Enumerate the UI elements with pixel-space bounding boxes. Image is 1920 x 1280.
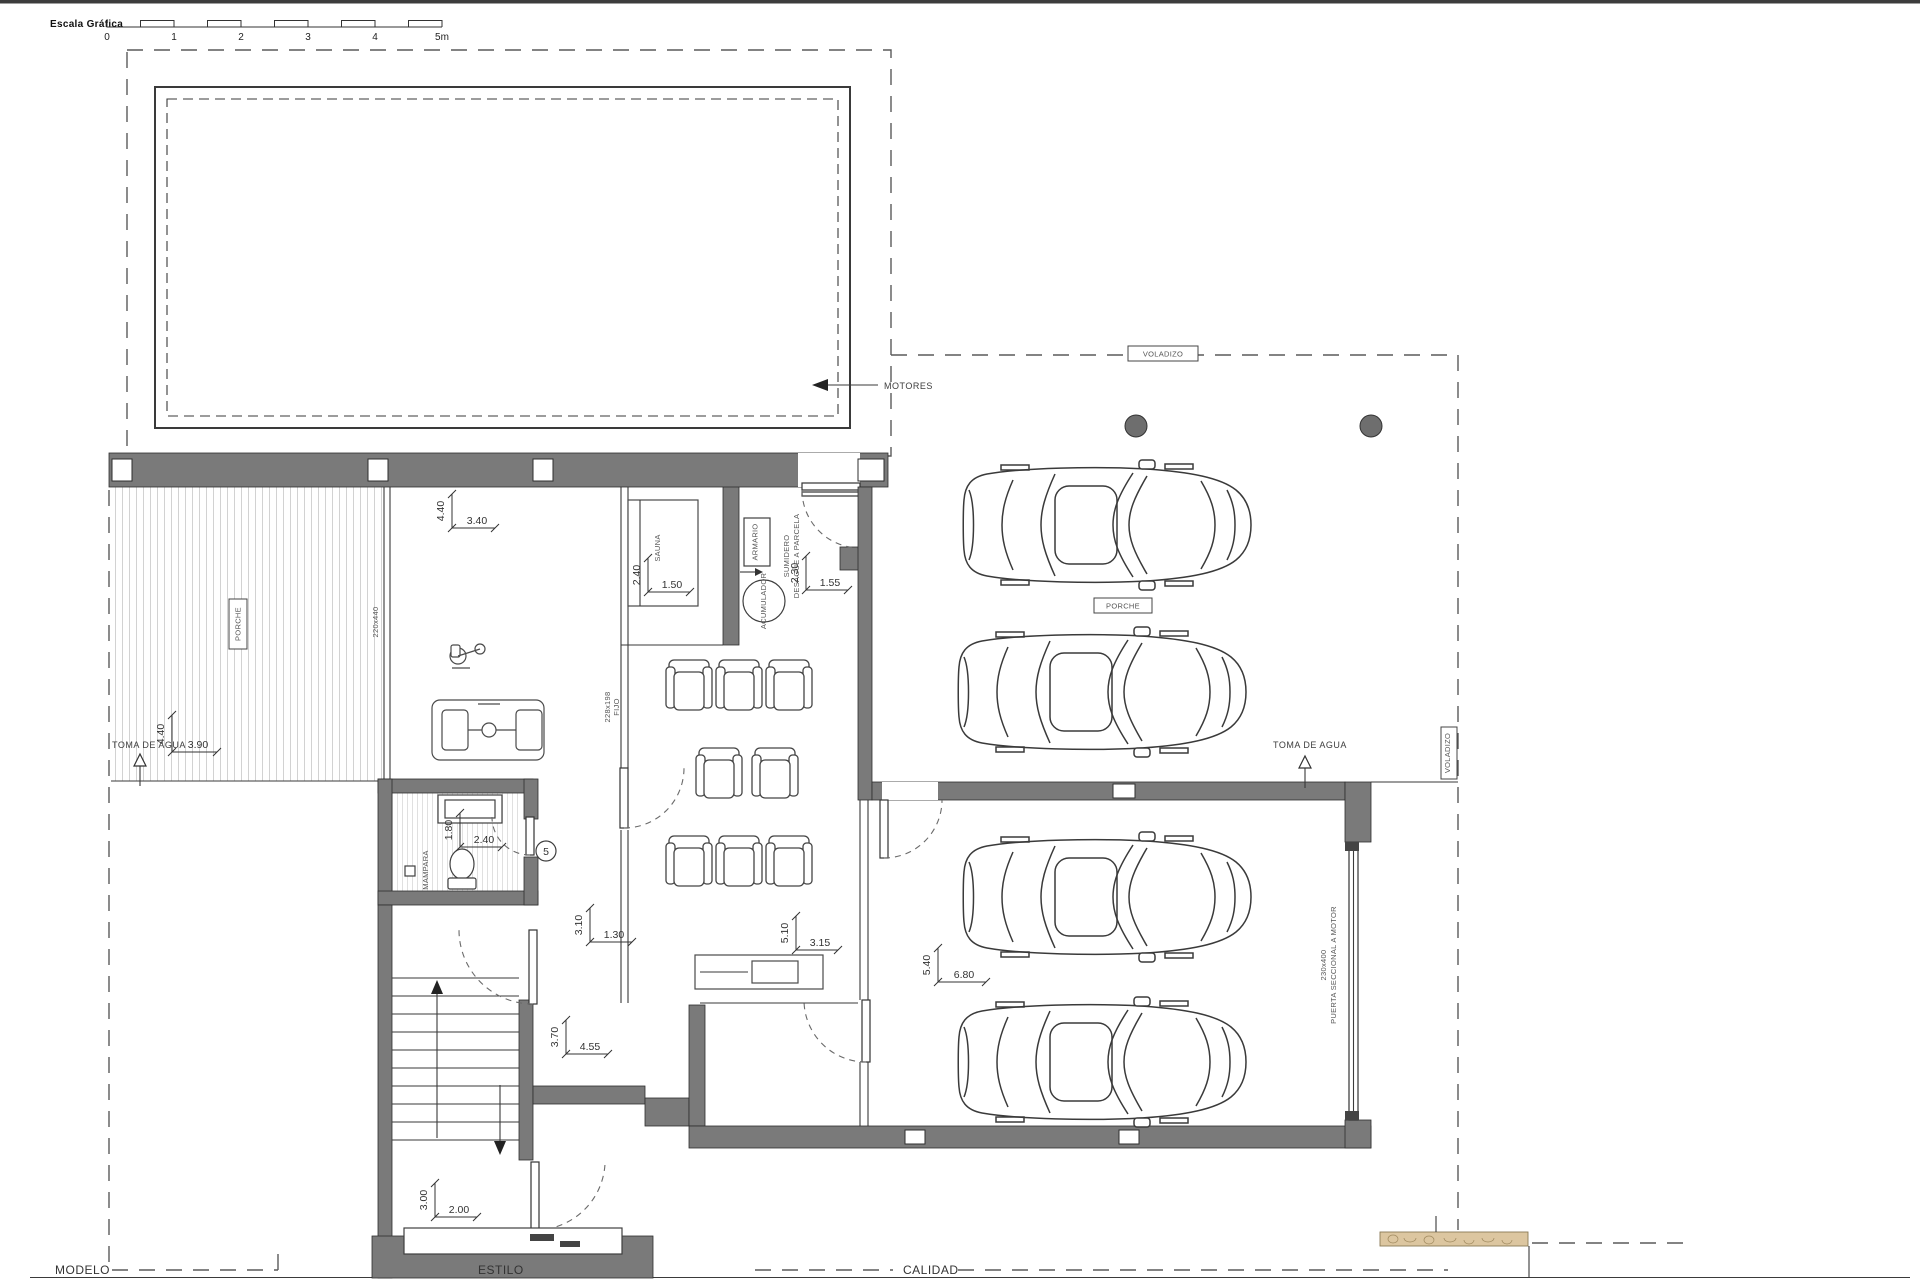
cinema-garage-door-leaf [862,1000,870,1062]
car-terrace-2 [958,627,1246,757]
shower-drain [405,866,415,876]
motores-label: MOTORES [884,381,933,391]
terrace-column [1125,415,1147,437]
floor-plan-basement: Escala Gráfica 0 1 2 3 4 5m MOTORES PORC… [0,0,1920,1280]
keynote-number: 5 [543,846,549,858]
dim-gym-h: 3.40 [467,515,488,527]
cinema-seat [666,836,712,886]
scale-tick-2: 2 [238,32,244,43]
stone-strip [1380,1216,1528,1246]
plot-boundary-bottom-left [112,1252,278,1270]
garage-door-size: 230x400 [1319,950,1328,981]
cinema-room: 228x198 FIJO [603,660,858,1003]
cinema-window-type-label: FIJO [612,698,621,715]
scale-tick-5: 5m [435,32,449,43]
vestibule-door-hw [530,1234,554,1241]
dim-bath-h: 2.40 [474,834,495,846]
cinema-window-size-label: 228x198 [603,692,612,723]
gym-machine [432,700,544,760]
dim-porch-v: 4.40 [155,724,167,745]
landing-door-swing [459,930,533,1004]
dim-stairs-h: 4.55 [580,1041,601,1053]
drawing-sheet: Escala Gráfica 0 1 2 3 4 5m MOTORES PORC… [0,0,1920,1280]
terrace-garage-door-leaf [880,800,888,858]
cinema-door-leaf [620,768,628,828]
cinema-seat [752,748,798,798]
cinema-door-swing [624,768,684,828]
dim-cinema-h: 3.15 [810,937,831,949]
title-modelo: MODELO [55,1263,110,1277]
bathroom-door-leaf [526,817,534,855]
dim-utility-h: 1.55 [820,577,841,589]
vestibule-recess [404,1228,622,1254]
title-calidad: CALIDAD [903,1263,959,1277]
dim-sauna-v: 2.40 [631,565,643,586]
bathroom: MAMPARA 5 [378,779,556,905]
dim-cinema-v: 5.10 [779,923,791,944]
cinema-garage-door-swing [804,1000,866,1062]
voladizo-right-label: VOLADIZO [1443,733,1452,773]
scale-tick-1: 1 [171,32,177,43]
armario-label: ARMARIO [751,523,760,560]
sauna-label: SAUNA [653,534,662,561]
media-console [695,955,823,989]
stair-arrow-down-icon [494,1141,506,1155]
motores-arrow-icon [812,379,828,391]
mampara-label: MAMPARA [421,850,430,889]
cinema-seat [766,660,812,710]
sectional-door-cap-top [1345,842,1359,851]
title-estilo: ESTILO [478,1263,524,1277]
dim-hall-v: 3.10 [573,915,585,936]
terrace-garage-door-swing [884,800,942,858]
cinema-seat [716,836,762,886]
dim-gym-v: 4.40 [435,501,447,522]
pool [155,87,850,428]
toma-agua-right-label: TOMA DE AGUA [1273,740,1347,750]
pool-inner-edge [167,99,838,416]
scale-tick-3: 3 [305,32,311,43]
gym-cinema-partition [621,487,628,1003]
cinema-seat [696,748,742,798]
toma-de-agua-right: TOMA DE AGUA [1273,740,1347,788]
hall-walls [533,1086,689,1126]
pool-plot-boundary [127,50,891,456]
dim-vestibule-v: 3.00 [418,1190,430,1211]
stair-bottom-door-leaf [531,1162,539,1232]
terrace-column [1360,415,1382,437]
cinema-garage-partition [860,800,868,1126]
utility-door-opening [798,453,860,487]
garage-door-label: PUERTA SECCIONAL A MOTOR [1329,906,1338,1024]
utility-door [802,483,860,548]
stair-bottom-door-swing [535,1164,605,1230]
dim-utility-v: 2.30 [789,563,801,584]
stair-arrow-up-icon [431,980,443,994]
toilet [448,849,476,889]
voladizo-top-label: VOLADIZO [1143,350,1183,359]
scale-bar-title: Escala Gráfica [50,19,123,30]
car-terrace-1 [963,460,1251,590]
cinema-seat [766,836,812,886]
motores-callout: MOTORES [812,379,933,391]
landing-door-leaf [529,930,537,1004]
utility-door-swing [802,490,860,548]
sumidero-label-2: DESAGÜE A PARCELA [792,514,801,599]
dim-vestibule-h: 2.00 [449,1204,470,1216]
car-garage-2 [958,997,1246,1127]
dim-sauna-h: 1.50 [662,579,683,591]
cinema-seat [716,660,762,710]
terrace-garage-door-opening [882,782,938,800]
acumulador-label: ACUMULADOR [759,573,768,630]
pool-outer-edge [155,87,850,428]
dim-stairs-v: 3.70 [549,1027,561,1048]
scale-tick-4: 4 [372,32,378,43]
utility-room: ARMARIO ACUMULADOR SUMIDERO DESAGÜE A PA… [723,479,866,645]
gym-room: 220x440 [371,487,628,1003]
vestibule-door-hw2 [560,1241,580,1247]
dim-bath-v: 1.80 [443,820,455,841]
scale-tick-0: 0 [104,32,110,43]
porch-left: PORCHE [111,481,384,781]
porche-terrace-label: PORCHE [1106,602,1140,611]
sectional-door-cap-bottom [1345,1111,1359,1120]
toma-agua-left-label: TOMA DE AGUA [112,740,186,750]
toma-agua-right-icon [1299,756,1311,768]
porche-left-label: PORCHE [234,607,243,641]
car-garage-1 [963,832,1251,962]
cinema-seat [666,660,712,710]
dim-porch-h: 3.90 [188,739,209,751]
north-wall [109,453,888,487]
dim-hall-h: 1.30 [604,929,625,941]
scale-bar: Escala Gráfica 0 1 2 3 4 5m [50,19,449,43]
exercise-bike [450,644,485,668]
dim-garage-v: 5.40 [921,955,933,976]
gym-window-wall [384,487,390,779]
sauna-utility-wall [723,479,739,645]
dim-garage-h: 6.80 [954,969,975,981]
gym-window-size-label: 220x440 [371,607,380,638]
